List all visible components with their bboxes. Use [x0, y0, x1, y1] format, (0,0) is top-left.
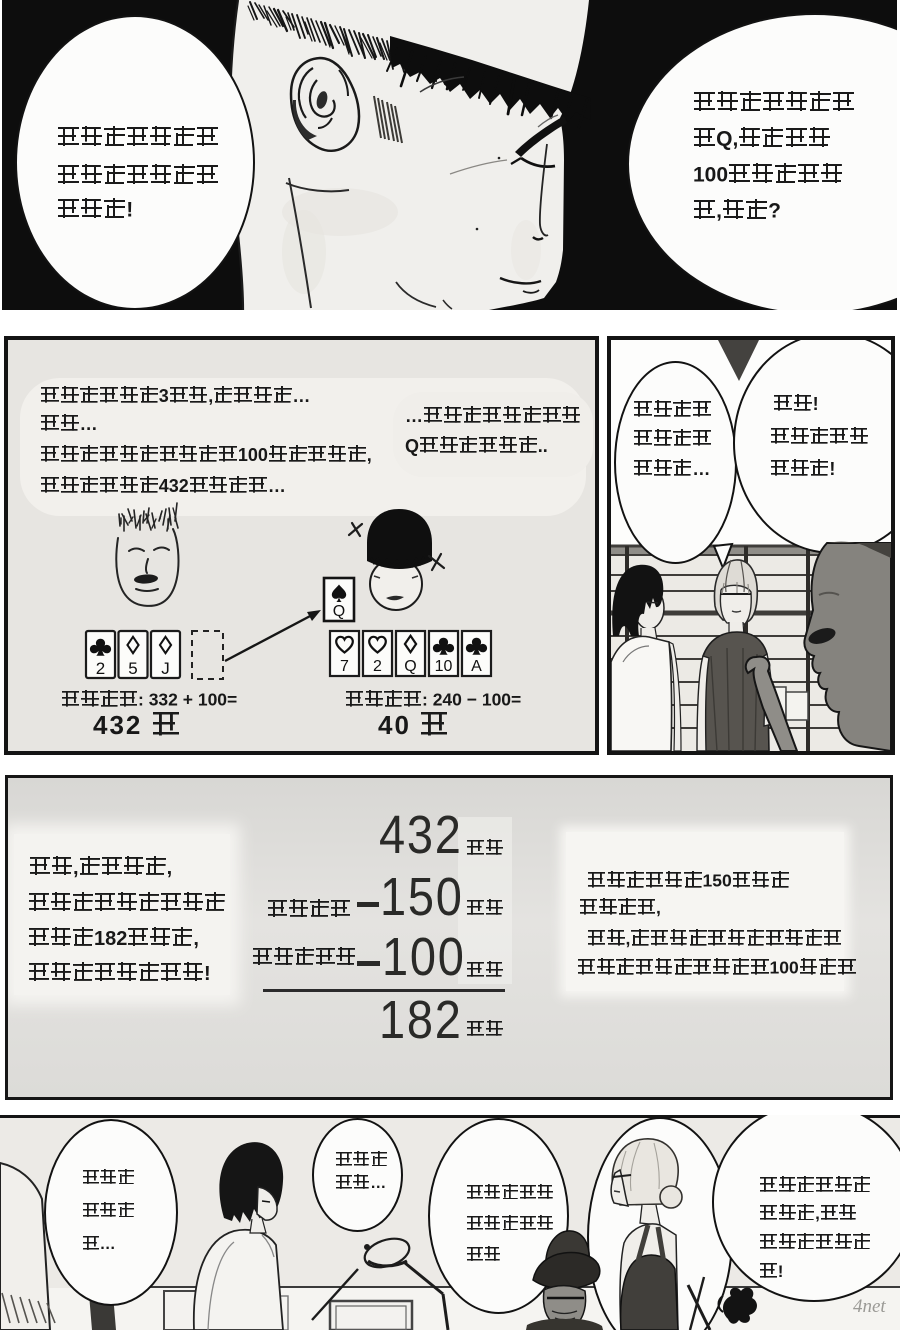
svg-text:Q: Q: [333, 603, 345, 620]
svg-text:10: 10: [435, 658, 453, 675]
svg-text:4net: 4net: [853, 1296, 886, 1317]
svg-text:Q: Q: [404, 658, 416, 675]
svg-text:A: A: [471, 658, 482, 675]
svg-text:5: 5: [128, 659, 137, 678]
svg-text:7: 7: [340, 658, 349, 675]
svg-text:J: J: [161, 659, 170, 678]
svg-text:2: 2: [96, 659, 105, 678]
svg-text:2: 2: [373, 658, 382, 675]
